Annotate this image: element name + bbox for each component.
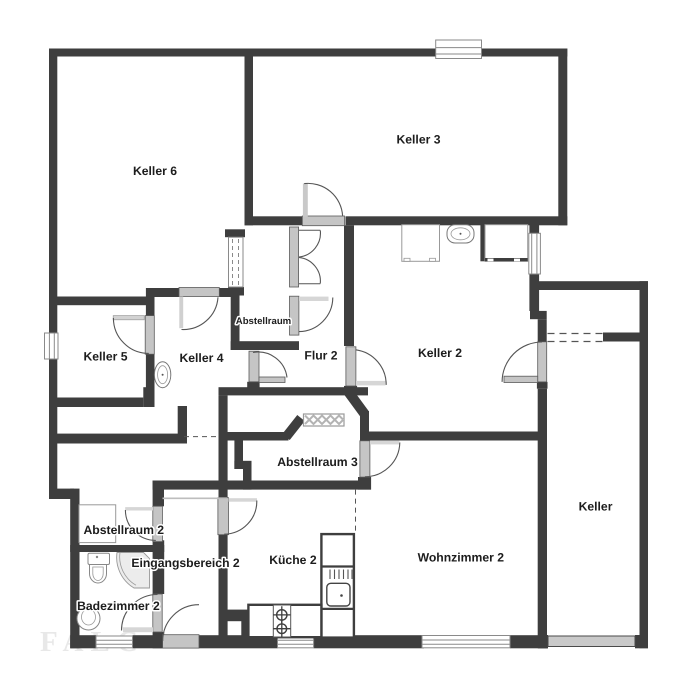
svg-text:Abstellraum 2: Abstellraum 2 bbox=[83, 523, 164, 537]
svg-text:Keller: Keller bbox=[579, 500, 613, 514]
svg-text:Eingangsbereich 2: Eingangsbereich 2 bbox=[131, 556, 240, 570]
svg-text:Flur 2: Flur 2 bbox=[304, 348, 337, 362]
svg-text:Keller 2: Keller 2 bbox=[418, 346, 462, 360]
svg-text:Keller 5: Keller 5 bbox=[83, 349, 127, 363]
svg-text:Keller 3: Keller 3 bbox=[396, 132, 440, 146]
svg-text:Abstellraum 3: Abstellraum 3 bbox=[277, 455, 358, 469]
svg-text:Wohnzimmer 2: Wohnzimmer 2 bbox=[418, 551, 505, 565]
svg-text:Badezimmer 2: Badezimmer 2 bbox=[77, 599, 160, 613]
svg-text:Keller 4: Keller 4 bbox=[179, 351, 223, 365]
svg-text:Abstellraum: Abstellraum bbox=[236, 316, 291, 327]
svg-text:Küche 2: Küche 2 bbox=[269, 553, 317, 567]
svg-text:Keller 6: Keller 6 bbox=[133, 164, 177, 178]
